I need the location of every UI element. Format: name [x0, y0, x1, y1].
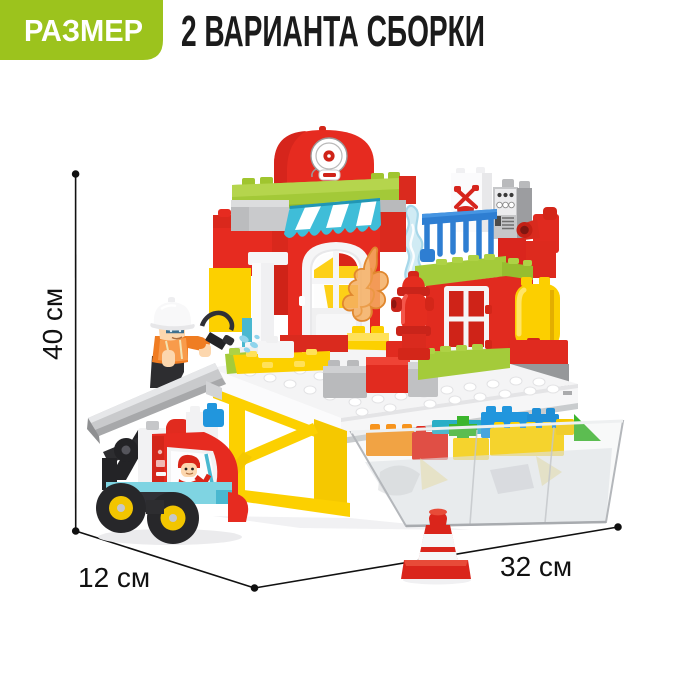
svg-text:2 ВАРИАНТА СБОРКИ: 2 ВАРИАНТА СБОРКИ: [181, 7, 485, 56]
svg-text:12 см: 12 см: [78, 562, 150, 593]
svg-text:РАЗМЕР: РАЗМЕР: [24, 13, 143, 48]
svg-text:32 см: 32 см: [500, 551, 572, 582]
svg-text:40 см: 40 см: [37, 288, 68, 360]
